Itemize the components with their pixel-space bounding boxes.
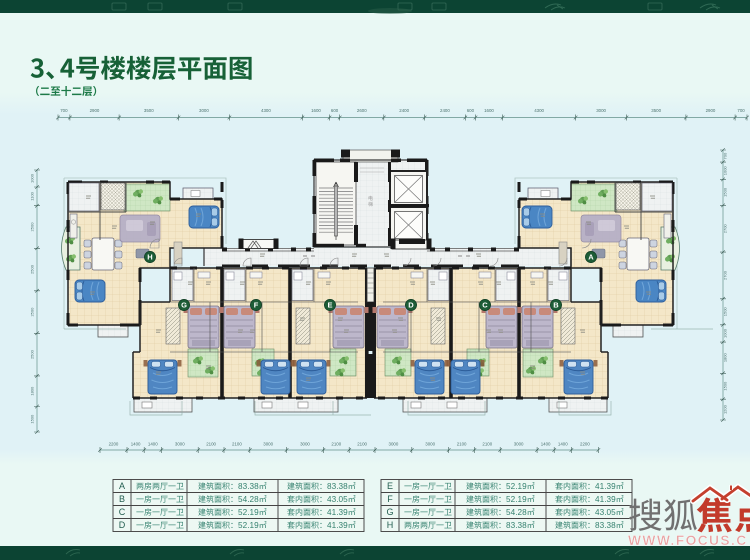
svg-text:1400: 1400 [148,442,158,447]
svg-text:2200: 2200 [580,442,590,447]
svg-text:C: C [119,507,126,517]
svg-text:1000: 1000 [723,328,728,338]
svg-text:9: 9 [611,482,616,491]
svg-text:2700: 2700 [723,224,728,234]
svg-text:1500: 1500 [723,187,728,197]
svg-text:8: 8 [611,521,616,530]
svg-text:9: 9 [522,482,527,491]
svg-text:4300: 4300 [261,108,271,113]
svg-text:2400: 2400 [440,108,450,113]
svg-text:2100: 2100 [457,442,467,447]
svg-text:2600: 2600 [357,108,367,113]
svg-text:9: 9 [343,521,348,530]
svg-text:9: 9 [522,495,527,504]
svg-text:2700: 2700 [723,270,728,280]
svg-text:1100: 1100 [30,191,35,200]
svg-text:3500: 3500 [651,108,661,113]
svg-text:600: 600 [467,108,475,113]
svg-text:E: E [327,301,332,310]
svg-text:9: 9 [254,508,259,517]
svg-text:G: G [386,507,393,517]
svg-text:9: 9 [343,508,348,517]
svg-text:2100: 2100 [482,442,492,447]
svg-text:1500: 1500 [723,381,728,391]
svg-text:D: D [119,520,126,530]
svg-text:700: 700 [723,152,728,159]
svg-text:1400: 1400 [131,442,141,447]
svg-text:2500: 2500 [30,222,35,232]
svg-text:1600: 1600 [311,108,321,113]
svg-text:E: E [387,481,393,491]
svg-text:4300: 4300 [534,108,544,113]
svg-text:3000: 3000 [514,442,524,447]
svg-text:2500: 2500 [30,307,35,317]
svg-text:G: G [181,301,187,310]
svg-text:2100: 2100 [331,442,341,447]
svg-text:700: 700 [60,108,68,113]
svg-text:3000: 3000 [263,442,273,447]
svg-text:9: 9 [254,521,259,530]
svg-text:2100: 2100 [357,442,367,447]
svg-text:2100: 2100 [206,442,216,447]
svg-text:3000: 3000 [425,442,435,447]
svg-text:A: A [119,481,125,491]
svg-text:WWW.FOCUS.C: WWW.FOCUS.C [628,533,748,548]
svg-text:2900: 2900 [90,108,100,113]
svg-text:3000: 3000 [596,108,606,113]
svg-text:5: 5 [611,508,616,517]
svg-text:1800: 1800 [30,386,35,396]
svg-text:H: H [387,520,394,530]
svg-text:F: F [387,494,393,504]
svg-text:H: H [147,253,152,262]
svg-text:1800: 1800 [723,352,728,362]
svg-text:1600: 1600 [484,108,494,113]
svg-text:3500: 3500 [144,108,154,113]
svg-text:1000: 1000 [723,166,728,176]
svg-text:600: 600 [331,108,339,113]
svg-text:A: A [588,253,594,262]
svg-text:8: 8 [254,495,259,504]
svg-text:2500: 2500 [30,264,35,274]
svg-text:2900: 2900 [706,108,716,113]
svg-text:F: F [254,301,259,310]
svg-text:2400: 2400 [399,108,409,113]
svg-text:5: 5 [343,495,348,504]
svg-text:2200: 2200 [109,442,119,447]
svg-text:2100: 2100 [232,442,242,447]
svg-text:1500: 1500 [30,414,35,424]
svg-text:2500: 2500 [30,349,35,359]
svg-text:3000: 3000 [199,108,209,113]
svg-text:1400: 1400 [558,442,568,447]
svg-text:1200: 1200 [723,404,728,414]
svg-text:8: 8 [343,482,348,491]
svg-text:3000: 3000 [175,442,185,447]
svg-text:9: 9 [611,495,616,504]
svg-text:B: B [553,301,559,310]
svg-text:8: 8 [522,521,527,530]
svg-text:8: 8 [522,508,527,517]
svg-text:1400: 1400 [541,442,551,447]
svg-text:C: C [482,301,488,310]
svg-text:700: 700 [737,108,745,113]
svg-text:1500: 1500 [723,307,728,317]
svg-text:3000: 3000 [389,442,399,447]
svg-text:1000: 1000 [30,173,35,183]
svg-text:3000: 3000 [300,442,310,447]
svg-text:D: D [408,301,414,310]
svg-text:8: 8 [254,482,259,491]
svg-text:B: B [119,494,125,504]
